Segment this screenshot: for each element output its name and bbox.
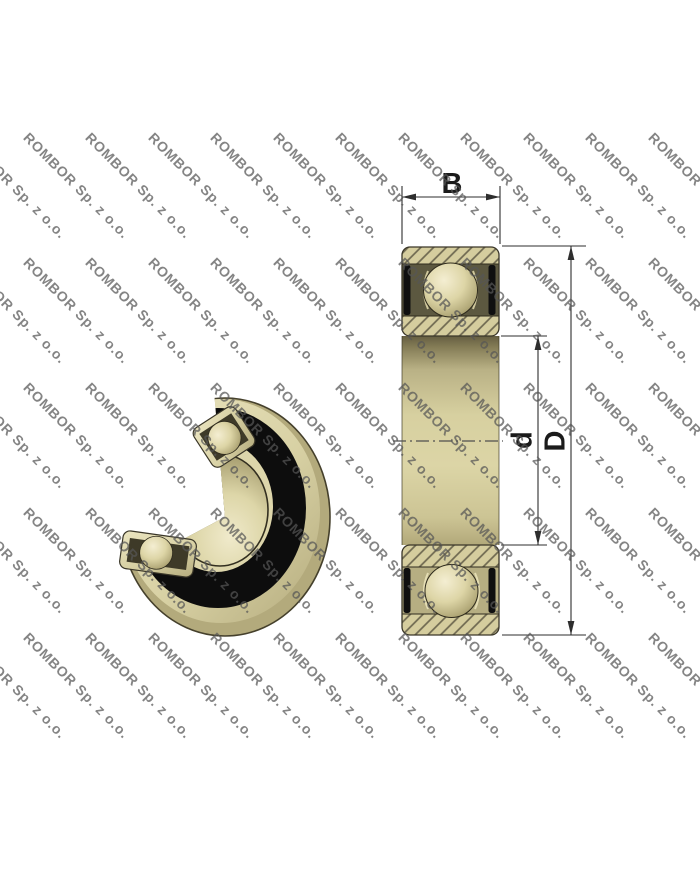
dim-label-b: B bbox=[442, 168, 463, 200]
dim-label-d: d bbox=[507, 431, 539, 449]
section-top-ring bbox=[402, 247, 499, 336]
seal-right bbox=[489, 568, 496, 613]
bearing-3d-view bbox=[119, 398, 330, 636]
bearing-drawing: B d D bbox=[0, 0, 700, 869]
product-image-page: B d D ROMBOR Sp. z o.o.ROMBOR Sp. z o.o.… bbox=[0, 0, 700, 869]
bearing-section-view: B d D bbox=[393, 168, 586, 635]
ball-section-bottom bbox=[425, 565, 478, 618]
dim-label-outer-d: D bbox=[540, 431, 572, 452]
seal-left bbox=[404, 265, 411, 315]
seal-right bbox=[489, 265, 496, 315]
seal-left bbox=[404, 568, 411, 613]
section-bottom-ring bbox=[402, 545, 499, 635]
ball-section-top bbox=[424, 263, 478, 317]
